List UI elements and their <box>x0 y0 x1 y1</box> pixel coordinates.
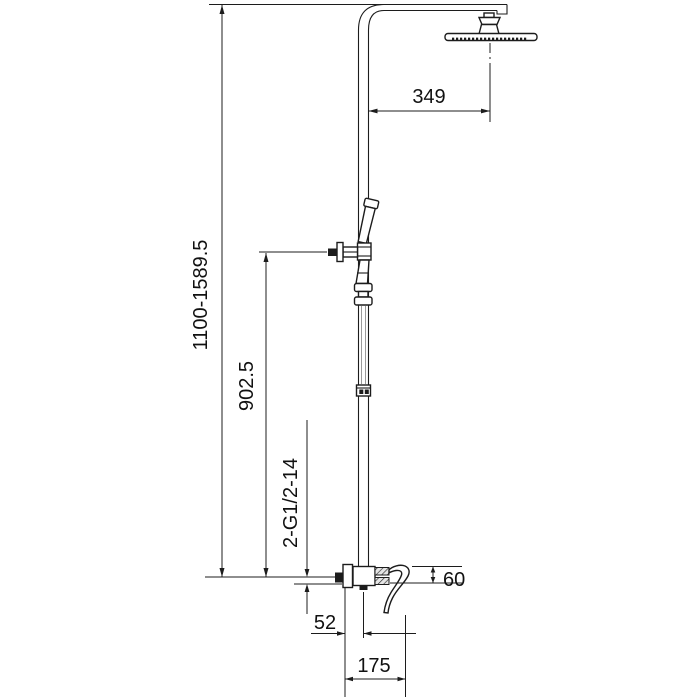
center-offset-label: 52 <box>314 612 336 634</box>
dimension-overall-height: 1100-1589.5 <box>190 5 336 577</box>
hose-nut <box>355 284 373 306</box>
wall-inlet-nipple <box>335 573 343 583</box>
wall-flange <box>343 565 353 588</box>
drawing-canvas: 1100-1589.5 349 902.5 2-G1/2-14 60 <box>0 0 700 700</box>
dimension-base-width: 175 <box>345 615 406 697</box>
dimension-center-offset: 52 <box>311 588 416 697</box>
spout-drop-label: 60 <box>443 569 465 591</box>
slider-holder <box>358 243 372 260</box>
bottom-outlet <box>360 586 368 591</box>
base-width-label: 175 <box>357 655 390 677</box>
hand-shower-height-label: 902.5 <box>236 361 258 411</box>
hand-shower <box>328 198 379 305</box>
upper-thread-connection <box>375 568 389 576</box>
overhead-shower <box>445 13 537 80</box>
shower-column-dimension-drawing: 1100-1589.5 349 902.5 2-G1/2-14 60 <box>0 0 700 700</box>
slider-knob <box>328 243 358 262</box>
knob-tip <box>328 249 337 257</box>
shower-head-disc <box>445 34 537 41</box>
thread-spec-label: 2-G1/2-14 <box>280 458 302 548</box>
head-reach-label: 349 <box>412 86 445 108</box>
mixer-valve <box>335 565 409 614</box>
arm-end-cap <box>497 5 507 15</box>
overall-height-label: 1100-1589.5 <box>190 240 212 351</box>
ball-joint <box>479 13 500 34</box>
dimension-head-reach: 349 <box>369 63 491 122</box>
lock-collar <box>357 385 371 396</box>
dimension-thread-spec: 2-G1/2-14 <box>280 420 342 614</box>
mixer-body <box>353 567 375 586</box>
lower-thread-connection <box>375 578 389 585</box>
